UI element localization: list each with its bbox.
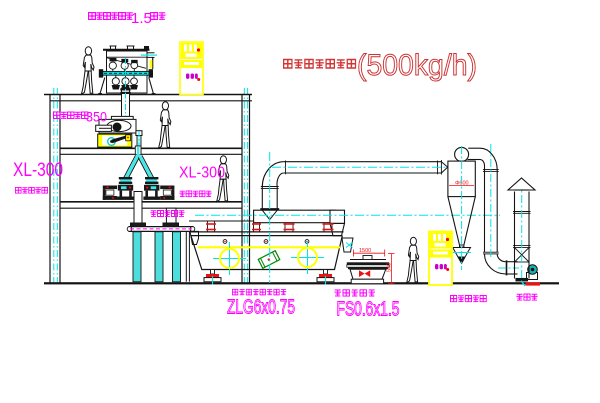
svg-text:(500kg/h): (500kg/h) xyxy=(357,49,477,82)
svg-text:XL-300: XL-300 xyxy=(13,160,63,181)
svg-text:FS0.6x1.5: FS0.6x1.5 xyxy=(337,299,400,321)
svg-text:540: 540 xyxy=(387,263,393,272)
svg-text:1.5: 1.5 xyxy=(131,10,152,27)
svg-text:1500: 1500 xyxy=(359,248,371,254)
svg-text:XL-300: XL-300 xyxy=(179,165,225,182)
svg-text:ZLG6x0.75: ZLG6x0.75 xyxy=(227,297,295,319)
svg-text:350: 350 xyxy=(86,109,107,125)
